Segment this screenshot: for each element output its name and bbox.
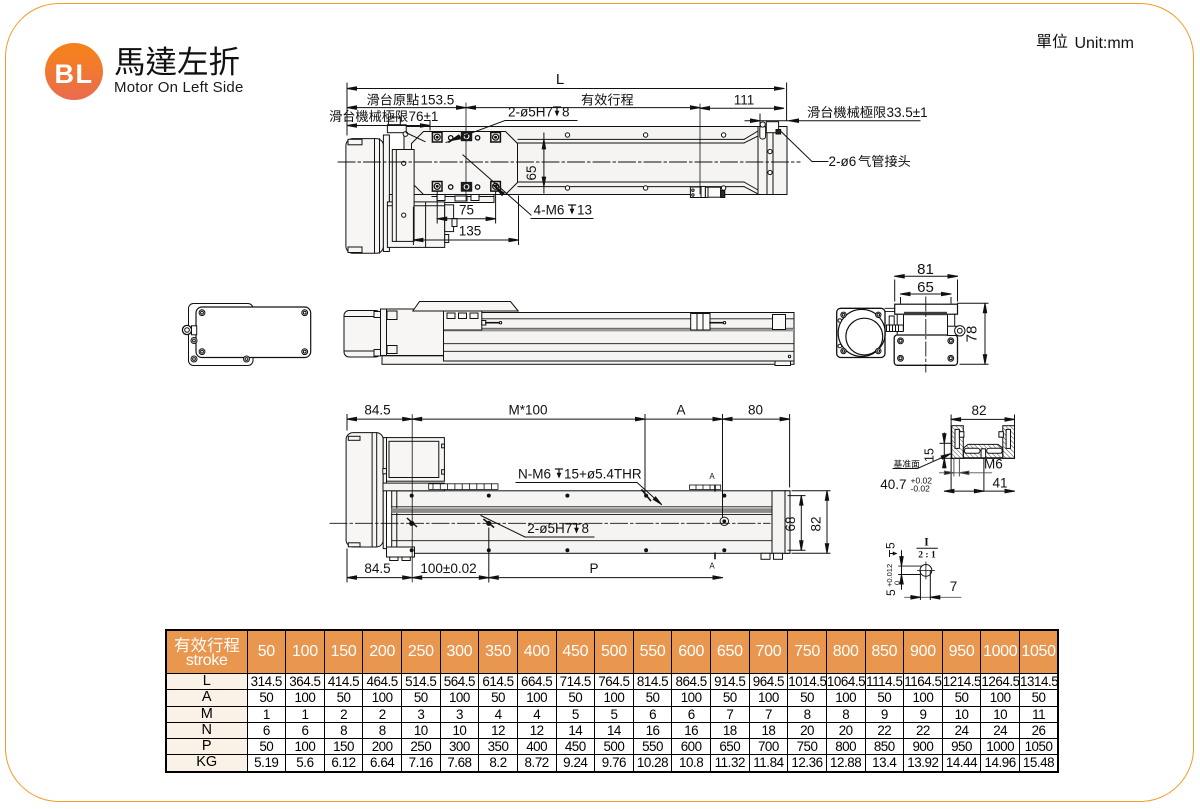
svg-text:2-ø6: 2-ø6 xyxy=(829,154,857,169)
svg-text:40.7: 40.7 xyxy=(880,477,906,492)
svg-text:5: 5 xyxy=(884,589,898,596)
svg-text:41: 41 xyxy=(992,476,1007,491)
svg-text:A: A xyxy=(676,403,685,418)
svg-text:80: 80 xyxy=(748,403,763,418)
svg-text:4-M6: 4-M6 xyxy=(534,203,565,218)
svg-text:82: 82 xyxy=(809,516,824,531)
svg-text:84.5: 84.5 xyxy=(364,561,390,576)
svg-text:65: 65 xyxy=(917,279,934,296)
svg-text:65: 65 xyxy=(524,165,539,180)
svg-text:-0.02: -0.02 xyxy=(911,484,931,494)
svg-text:135: 135 xyxy=(459,224,482,239)
svg-text:M*100: M*100 xyxy=(508,403,547,418)
svg-text:15+ø5.4THR: 15+ø5.4THR xyxy=(564,467,642,482)
svg-text:68: 68 xyxy=(783,516,798,531)
svg-text:2 : 1: 2 : 1 xyxy=(918,551,936,561)
svg-text:84.5: 84.5 xyxy=(364,403,390,418)
svg-text:82: 82 xyxy=(971,403,986,418)
svg-text:8: 8 xyxy=(562,105,570,120)
svg-text:81: 81 xyxy=(917,261,934,278)
svg-text:153.5: 153.5 xyxy=(421,93,455,108)
svg-text:5: 5 xyxy=(884,542,898,549)
svg-text:M6: M6 xyxy=(984,457,1003,472)
svg-text:100±0.02: 100±0.02 xyxy=(420,561,476,576)
svg-text:0: 0 xyxy=(893,581,902,585)
svg-text:75: 75 xyxy=(459,203,474,218)
svg-text:A: A xyxy=(709,472,715,481)
svg-text:78: 78 xyxy=(964,326,981,343)
svg-text:33.5±1: 33.5±1 xyxy=(887,105,928,120)
svg-text:2-ø5H7: 2-ø5H7 xyxy=(508,105,553,120)
svg-text:L: L xyxy=(556,71,564,88)
svg-text:2-ø5H7: 2-ø5H7 xyxy=(527,521,572,536)
svg-text:I: I xyxy=(924,537,929,549)
svg-text:A: A xyxy=(709,562,715,571)
svg-text:13: 13 xyxy=(577,203,592,218)
svg-text:8: 8 xyxy=(582,521,590,536)
svg-text:111: 111 xyxy=(734,93,755,108)
svg-text:76±1: 76±1 xyxy=(409,109,439,124)
svg-text:7: 7 xyxy=(950,579,958,594)
svg-text:P: P xyxy=(589,561,598,576)
svg-text:N-M6: N-M6 xyxy=(518,467,551,482)
svg-text:15: 15 xyxy=(923,448,937,462)
